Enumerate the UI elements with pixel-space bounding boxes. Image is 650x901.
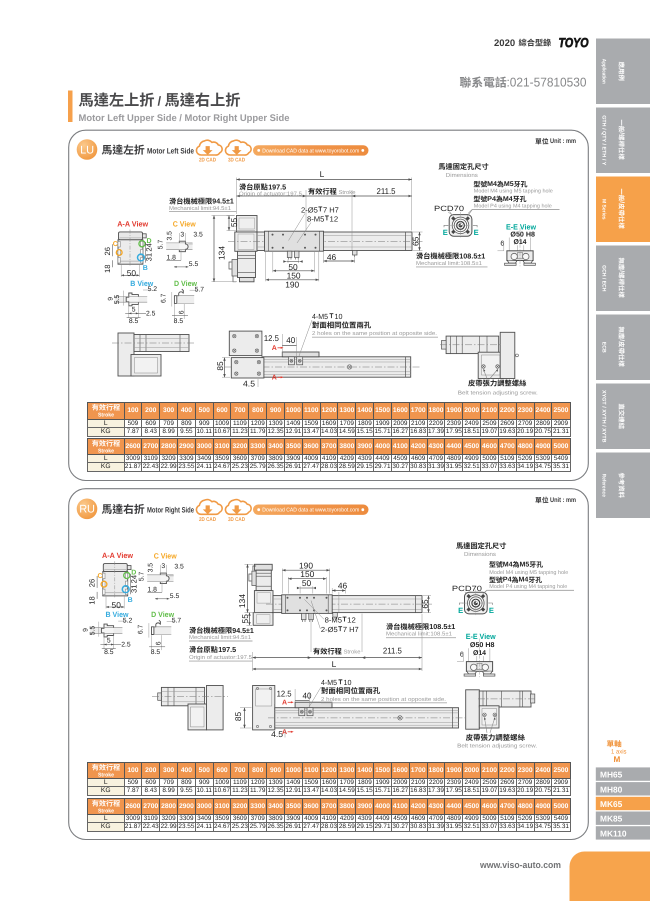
svg-text:E-E View: E-E View bbox=[466, 632, 496, 641]
svg-text:MH80: MH80 bbox=[600, 784, 623, 794]
svg-text:10: 10 bbox=[344, 678, 352, 687]
svg-text:2 holes on the same position a: 2 holes on the same position at opposite… bbox=[312, 330, 437, 337]
svg-text:2020: 2020 bbox=[494, 38, 515, 49]
svg-text:190: 190 bbox=[285, 280, 299, 290]
svg-text:4-M5: 4-M5 bbox=[321, 678, 337, 687]
svg-text:55: 55 bbox=[229, 218, 239, 228]
svg-text:Model P4 using M4 tapping hole: Model P4 using M4 tapping hole bbox=[489, 584, 567, 590]
svg-text:MK65: MK65 bbox=[600, 799, 623, 809]
svg-text:3: 3 bbox=[161, 563, 165, 570]
svg-text:E-E View: E-E View bbox=[506, 223, 536, 232]
svg-text:4-M5: 4-M5 bbox=[312, 312, 328, 321]
svg-text:10: 10 bbox=[335, 312, 343, 321]
svg-text:5.5: 5.5 bbox=[89, 626, 96, 636]
svg-text:E: E bbox=[474, 228, 479, 237]
svg-text:Stroke: Stroke bbox=[98, 413, 114, 418]
svg-text:/: / bbox=[158, 94, 162, 109]
svg-text:50: 50 bbox=[302, 578, 312, 588]
svg-text:5.5: 5.5 bbox=[114, 294, 121, 304]
svg-text:Application: Application bbox=[601, 59, 607, 84]
svg-text:46: 46 bbox=[338, 581, 348, 591]
svg-text:M5: M5 bbox=[519, 561, 529, 568]
svg-text:L: L bbox=[332, 659, 337, 669]
svg-text:65: 65 bbox=[420, 599, 430, 609]
svg-text:50: 50 bbox=[127, 268, 137, 278]
svg-text:5: 5 bbox=[107, 638, 111, 645]
svg-text:P4: P4 bbox=[487, 196, 496, 203]
svg-text:TOYO: TOYO bbox=[559, 35, 589, 50]
svg-text:LU: LU bbox=[80, 144, 94, 156]
svg-text:50: 50 bbox=[112, 600, 122, 610]
svg-text:/: / bbox=[618, 270, 625, 272]
svg-text:A: A bbox=[272, 345, 277, 352]
svg-text:3.5: 3.5 bbox=[167, 231, 174, 241]
svg-text:MK85: MK85 bbox=[600, 814, 623, 824]
svg-text:2.5: 2.5 bbox=[146, 311, 156, 318]
svg-text:18: 18 bbox=[88, 596, 97, 604]
svg-text:PCD70: PCD70 bbox=[434, 204, 464, 213]
svg-text:Origin of actuator:197.5: Origin of actuator:197.5 bbox=[239, 190, 302, 197]
svg-text:Stroke: Stroke bbox=[98, 808, 114, 813]
svg-text:Stroke: Stroke bbox=[339, 189, 356, 196]
svg-text:12.5: 12.5 bbox=[277, 688, 292, 698]
svg-text:Unit : mm: Unit : mm bbox=[550, 138, 576, 145]
svg-text:2D CAD: 2D CAD bbox=[199, 158, 216, 164]
svg-text:Motor Right Side: Motor Right Side bbox=[147, 506, 194, 515]
svg-text:M: M bbox=[614, 755, 621, 764]
svg-text:65: 65 bbox=[411, 236, 421, 246]
svg-text:Model M4 using M5 tapping hole: Model M4 using M5 tapping hole bbox=[489, 570, 568, 576]
svg-text:Ø50 H8: Ø50 H8 bbox=[470, 641, 495, 649]
svg-text:L: L bbox=[320, 169, 325, 179]
svg-text:Model M4 using M5 tapping hole: Model M4 using M5 tapping hole bbox=[474, 189, 553, 195]
svg-text:85: 85 bbox=[233, 712, 243, 722]
svg-text:B: B bbox=[143, 265, 148, 272]
svg-text:A: A bbox=[282, 700, 287, 707]
svg-text:8.5: 8.5 bbox=[174, 318, 184, 325]
svg-text:/: / bbox=[618, 132, 625, 134]
svg-text:5.5: 5.5 bbox=[170, 593, 180, 600]
svg-text:Download CAD data at www.toyor: Download CAD data at www.toyorobot.com bbox=[262, 507, 359, 514]
svg-text:6.7: 6.7 bbox=[160, 293, 167, 303]
svg-text:8.5: 8.5 bbox=[104, 649, 114, 656]
svg-text:8.5: 8.5 bbox=[151, 649, 161, 656]
svg-text:A-A View: A-A View bbox=[117, 220, 148, 229]
svg-text:55: 55 bbox=[240, 614, 250, 624]
svg-text:12.5: 12.5 bbox=[264, 333, 279, 343]
svg-text:5: 5 bbox=[132, 307, 136, 314]
svg-text:18: 18 bbox=[103, 265, 112, 273]
svg-text:5.7: 5.7 bbox=[172, 618, 182, 625]
svg-text:Motor Left Side: Motor Left Side bbox=[147, 146, 195, 155]
svg-text:A: A bbox=[272, 375, 277, 382]
svg-text:2 holes on the same position a: 2 holes on the same position at opposite… bbox=[321, 696, 446, 703]
svg-text:Dimensions: Dimensions bbox=[446, 172, 478, 179]
svg-text:2-Ø5: 2-Ø5 bbox=[301, 205, 318, 214]
svg-text:Mechanical limit:108.5±1: Mechanical limit:108.5±1 bbox=[416, 260, 482, 267]
svg-text:Model P4 using M4 tapping hole: Model P4 using M4 tapping hole bbox=[474, 203, 552, 209]
svg-text:/: / bbox=[618, 201, 625, 203]
svg-text:C: C bbox=[98, 573, 103, 580]
svg-text:12: 12 bbox=[347, 615, 356, 624]
svg-text:Stroke: Stroke bbox=[98, 772, 114, 777]
svg-text:3D CAD: 3D CAD bbox=[228, 517, 245, 523]
svg-text:Belt tension adjusting screw.: Belt tension adjusting screw. bbox=[458, 389, 538, 396]
svg-text:Motor Left Upper Side / Motor: Motor Left Upper Side / Motor Right Uppe… bbox=[79, 113, 290, 124]
svg-text:Stroke: Stroke bbox=[98, 448, 114, 453]
svg-text:E: E bbox=[489, 606, 494, 615]
svg-text:3.5: 3.5 bbox=[193, 232, 203, 239]
svg-text:MH65: MH65 bbox=[600, 770, 623, 780]
svg-text:8-M5: 8-M5 bbox=[307, 214, 324, 223]
svg-text:www.viso-auto.com: www.viso-auto.com bbox=[479, 860, 561, 870]
svg-text:E: E bbox=[443, 228, 448, 237]
svg-text:46: 46 bbox=[327, 252, 337, 262]
svg-text:E: E bbox=[458, 606, 463, 615]
svg-text:7 H7: 7 H7 bbox=[323, 205, 339, 214]
svg-text:85: 85 bbox=[215, 361, 225, 371]
svg-text:3: 3 bbox=[180, 231, 184, 238]
svg-text:C View: C View bbox=[154, 551, 177, 560]
svg-text:Mechanical limit:94.5±1: Mechanical limit:94.5±1 bbox=[169, 205, 231, 212]
svg-text:P4: P4 bbox=[503, 577, 512, 584]
svg-text:M4: M4 bbox=[487, 181, 497, 188]
svg-text:Dimensions: Dimensions bbox=[464, 551, 496, 558]
svg-text:8.5: 8.5 bbox=[129, 318, 139, 325]
svg-text:26: 26 bbox=[103, 247, 112, 255]
svg-text:Download CAD data at www.toyor: Download CAD data at www.toyorobot.com bbox=[262, 147, 359, 154]
svg-text:4.5: 4.5 bbox=[271, 729, 283, 739]
svg-text:3.5: 3.5 bbox=[148, 563, 155, 573]
svg-text:Mechanical limit:108.5±1: Mechanical limit:108.5±1 bbox=[386, 631, 452, 638]
svg-text:2-Ø5: 2-Ø5 bbox=[321, 625, 338, 634]
svg-text:RU: RU bbox=[79, 504, 95, 516]
svg-text:26: 26 bbox=[88, 579, 97, 587]
svg-text:40: 40 bbox=[303, 690, 312, 700]
svg-text:40: 40 bbox=[286, 335, 295, 345]
svg-text:5.2: 5.2 bbox=[123, 617, 133, 624]
svg-text:6.7: 6.7 bbox=[137, 624, 144, 634]
svg-text:M4: M4 bbox=[519, 577, 529, 584]
svg-text:12: 12 bbox=[330, 214, 339, 223]
svg-text:Origin of actuator:197.5: Origin of actuator:197.5 bbox=[189, 654, 252, 661]
svg-text:5.5: 5.5 bbox=[189, 261, 199, 268]
svg-text:5.2: 5.2 bbox=[148, 286, 158, 293]
svg-text:Stroke: Stroke bbox=[344, 649, 361, 656]
svg-text:134: 134 bbox=[217, 246, 227, 260]
svg-text:GTH / QTY / ETH / Y: GTH / QTY / ETH / Y bbox=[601, 115, 607, 166]
svg-text:2D CAD: 2D CAD bbox=[199, 517, 216, 523]
svg-text:Ø50 H8: Ø50 H8 bbox=[510, 230, 535, 238]
svg-text:3.5: 3.5 bbox=[174, 564, 184, 571]
svg-text:XYGT / XYTH / XYTB: XYGT / XYTH / XYTB bbox=[601, 390, 607, 443]
svg-text::021-57810530: :021-57810530 bbox=[507, 74, 587, 89]
svg-text:Belt tension adjusting screw.: Belt tension adjusting screw. bbox=[457, 742, 537, 749]
svg-text:5.7: 5.7 bbox=[158, 240, 165, 250]
svg-text:4.5: 4.5 bbox=[243, 379, 255, 389]
svg-text:MK110: MK110 bbox=[600, 828, 627, 838]
svg-text:211.5: 211.5 bbox=[383, 646, 402, 656]
svg-text:134: 134 bbox=[237, 594, 247, 608]
svg-text:211.5: 211.5 bbox=[377, 186, 396, 196]
svg-text:197.5: 197.5 bbox=[268, 182, 286, 191]
svg-text:7 H7: 7 H7 bbox=[343, 625, 359, 634]
svg-text:94.5±1: 94.5±1 bbox=[232, 626, 254, 635]
svg-text:197.5: 197.5 bbox=[218, 645, 236, 654]
svg-text:Mechanical limit:94.5±1: Mechanical limit:94.5±1 bbox=[189, 634, 251, 641]
svg-text:C View: C View bbox=[173, 220, 196, 229]
svg-text:108.5±1: 108.5±1 bbox=[429, 622, 455, 631]
svg-text:C: C bbox=[113, 241, 118, 248]
svg-text:M Series: M Series bbox=[601, 199, 607, 220]
svg-text:Unit : mm: Unit : mm bbox=[550, 497, 576, 504]
svg-text:94.5±1: 94.5±1 bbox=[212, 197, 234, 206]
svg-text:8-M5: 8-M5 bbox=[325, 615, 342, 624]
svg-text:B: B bbox=[128, 597, 133, 604]
svg-text:M4: M4 bbox=[503, 561, 513, 568]
svg-text:108.5±1: 108.5±1 bbox=[459, 251, 485, 260]
svg-text:3D CAD: 3D CAD bbox=[228, 158, 245, 164]
svg-text:M5: M5 bbox=[504, 181, 514, 188]
svg-text:2.5: 2.5 bbox=[121, 642, 131, 649]
svg-text:Reference: Reference bbox=[601, 474, 607, 497]
svg-text:A-A View: A-A View bbox=[102, 551, 133, 560]
svg-text:ECB: ECB bbox=[601, 342, 607, 353]
svg-text:/: / bbox=[618, 339, 625, 341]
svg-text:5.7: 5.7 bbox=[139, 571, 146, 581]
svg-text:5.7: 5.7 bbox=[195, 286, 205, 293]
svg-text:M4: M4 bbox=[503, 196, 513, 203]
svg-text:GCH / ECH: GCH / ECH bbox=[601, 265, 607, 292]
